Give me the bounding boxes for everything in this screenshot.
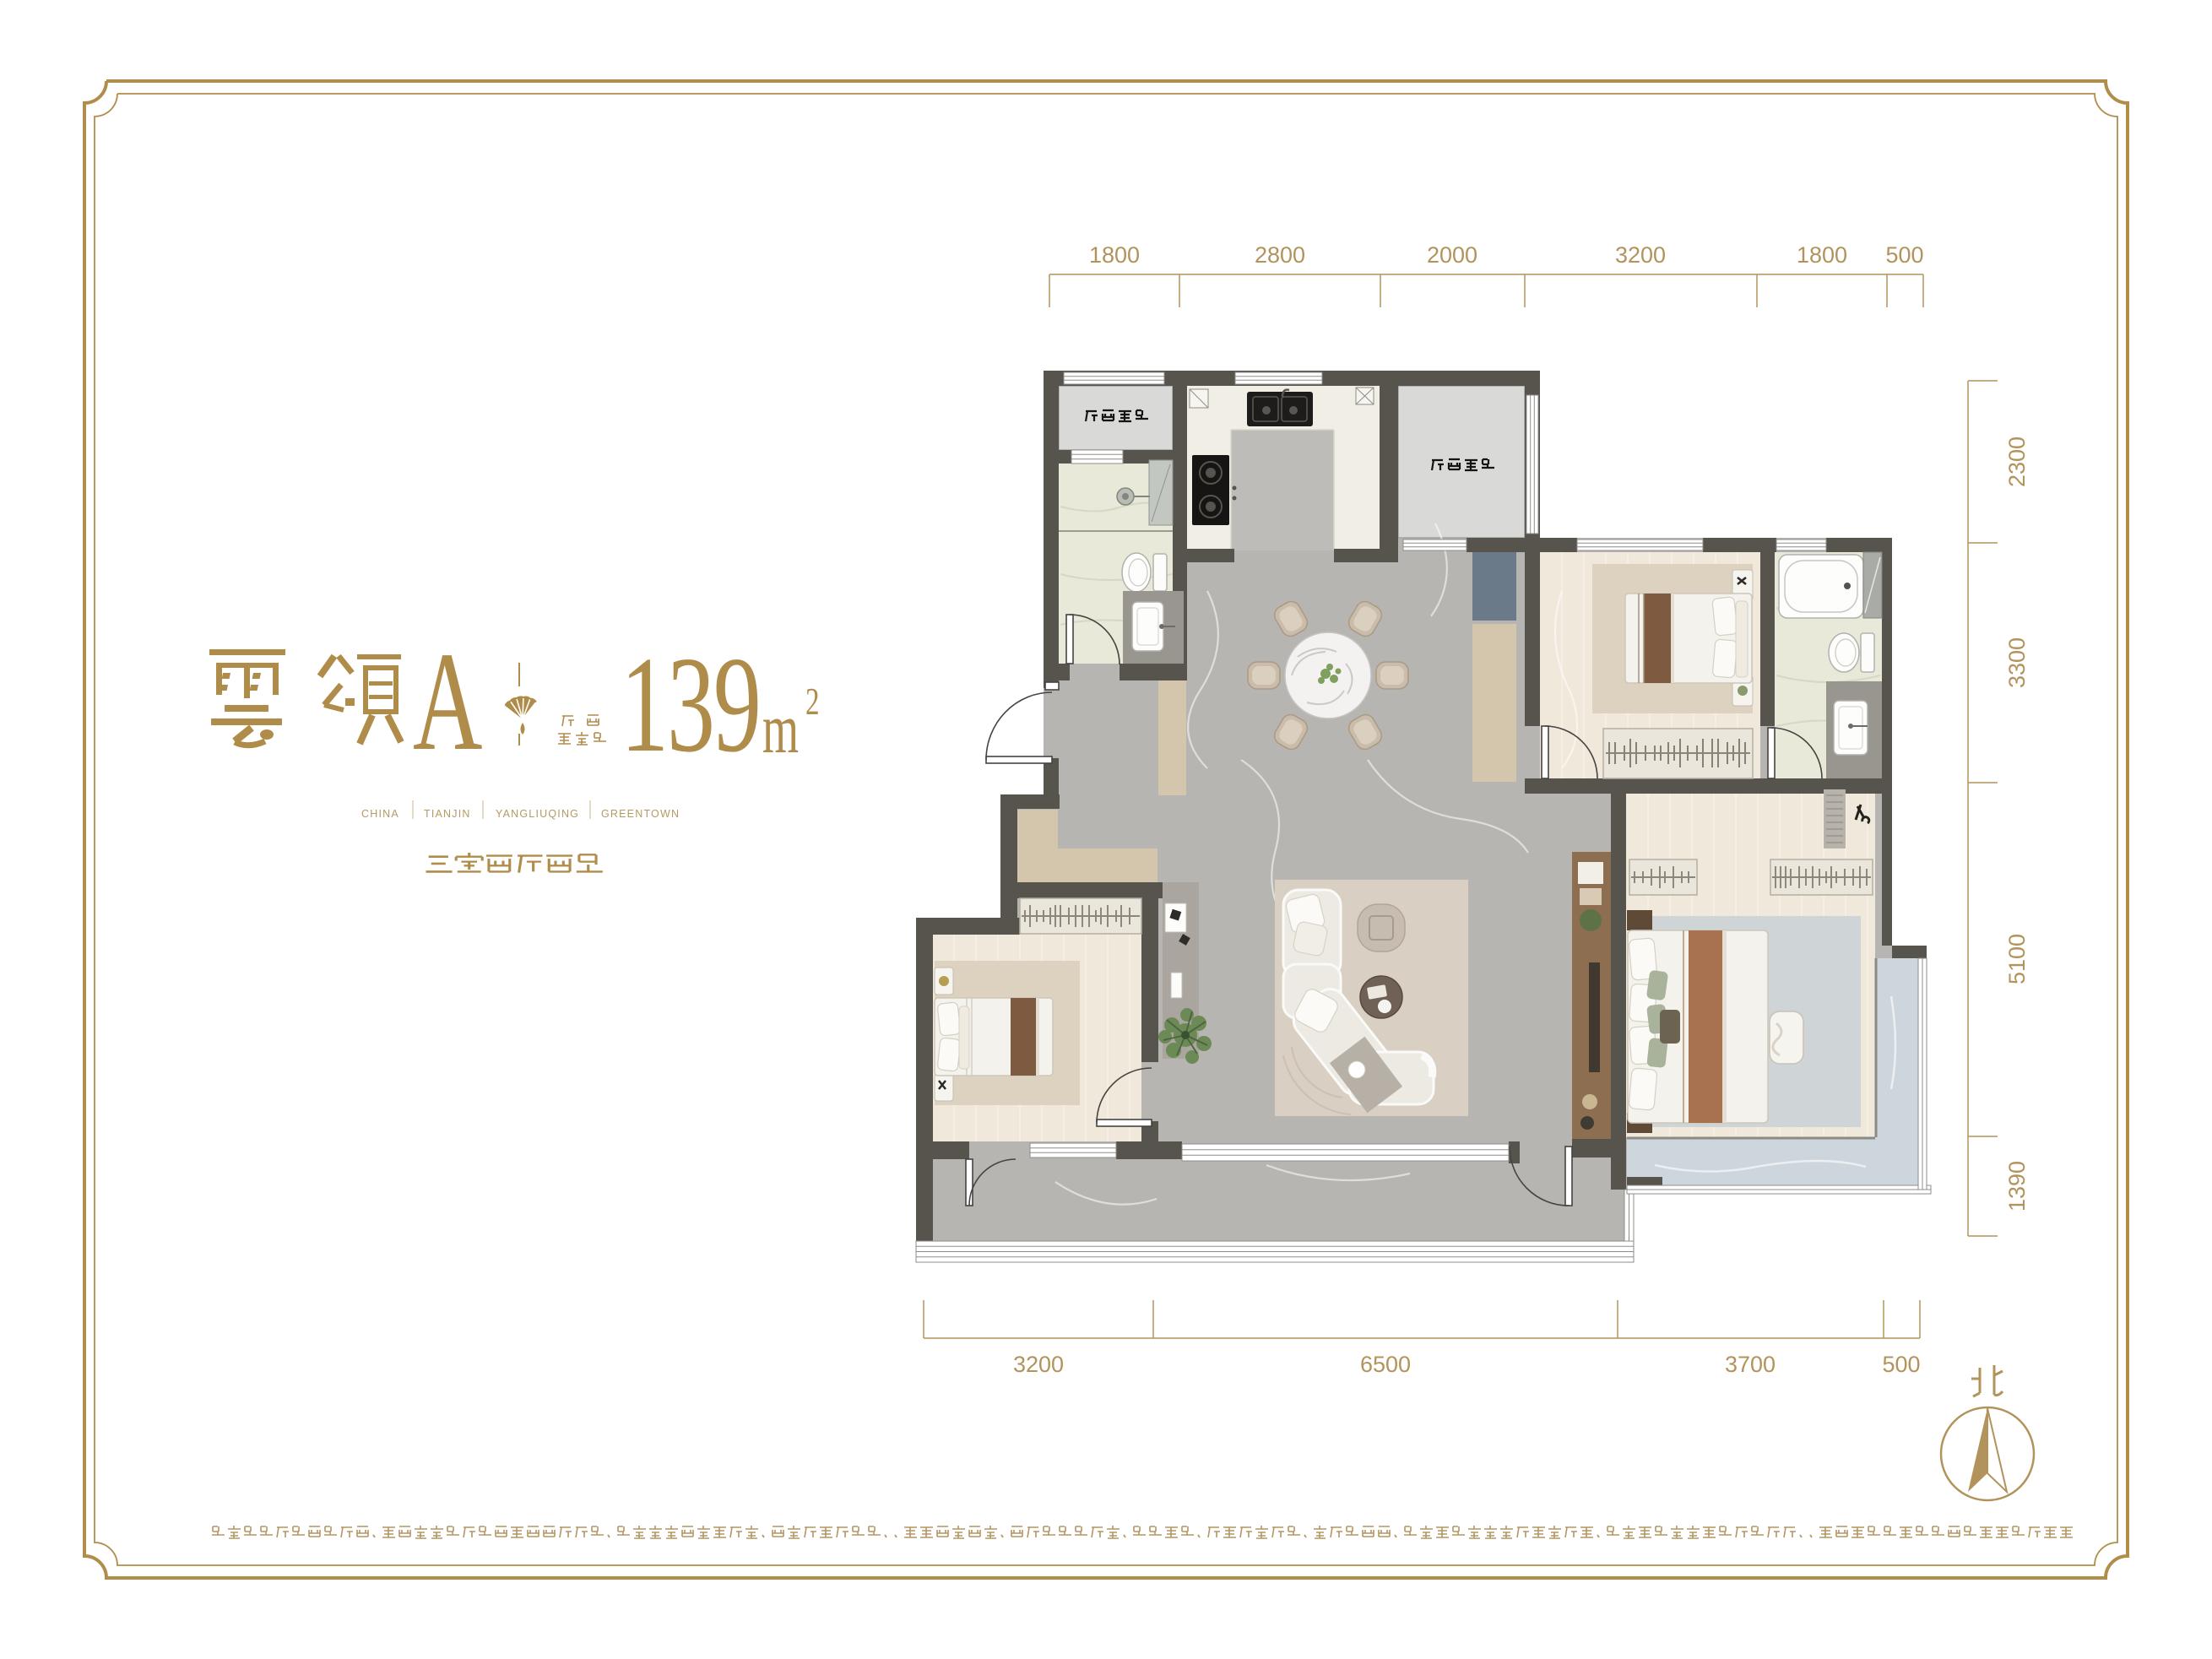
svg-text:5100: 5100 [2004, 934, 2030, 984]
svg-text:CHINA: CHINA [361, 808, 399, 820]
svg-text:1800: 1800 [1089, 242, 1140, 268]
svg-text:GREENTOWN: GREENTOWN [601, 808, 680, 820]
svg-text:6500: 6500 [1360, 1352, 1411, 1377]
svg-text:3300: 3300 [2004, 637, 2030, 688]
svg-text:3200: 3200 [1013, 1352, 1064, 1377]
svg-text:1390: 1390 [2004, 1161, 2030, 1212]
svg-text:YANGLIUQING: YANGLIUQING [496, 808, 579, 820]
svg-text:A: A [413, 623, 482, 780]
svg-text:2300: 2300 [2004, 436, 2030, 487]
svg-text:500: 500 [1885, 242, 1923, 268]
svg-text:500: 500 [1882, 1352, 1920, 1377]
svg-text:3200: 3200 [1615, 242, 1666, 268]
svg-text:2: 2 [805, 680, 820, 724]
svg-text:2800: 2800 [1255, 242, 1305, 268]
svg-text:m: m [762, 691, 799, 768]
svg-text:1800: 1800 [1797, 242, 1847, 268]
svg-text:2000: 2000 [1427, 242, 1477, 268]
svg-text:3700: 3700 [1725, 1352, 1776, 1377]
svg-text:TIANJIN: TIANJIN [424, 808, 471, 820]
svg-text:139: 139 [621, 629, 760, 781]
